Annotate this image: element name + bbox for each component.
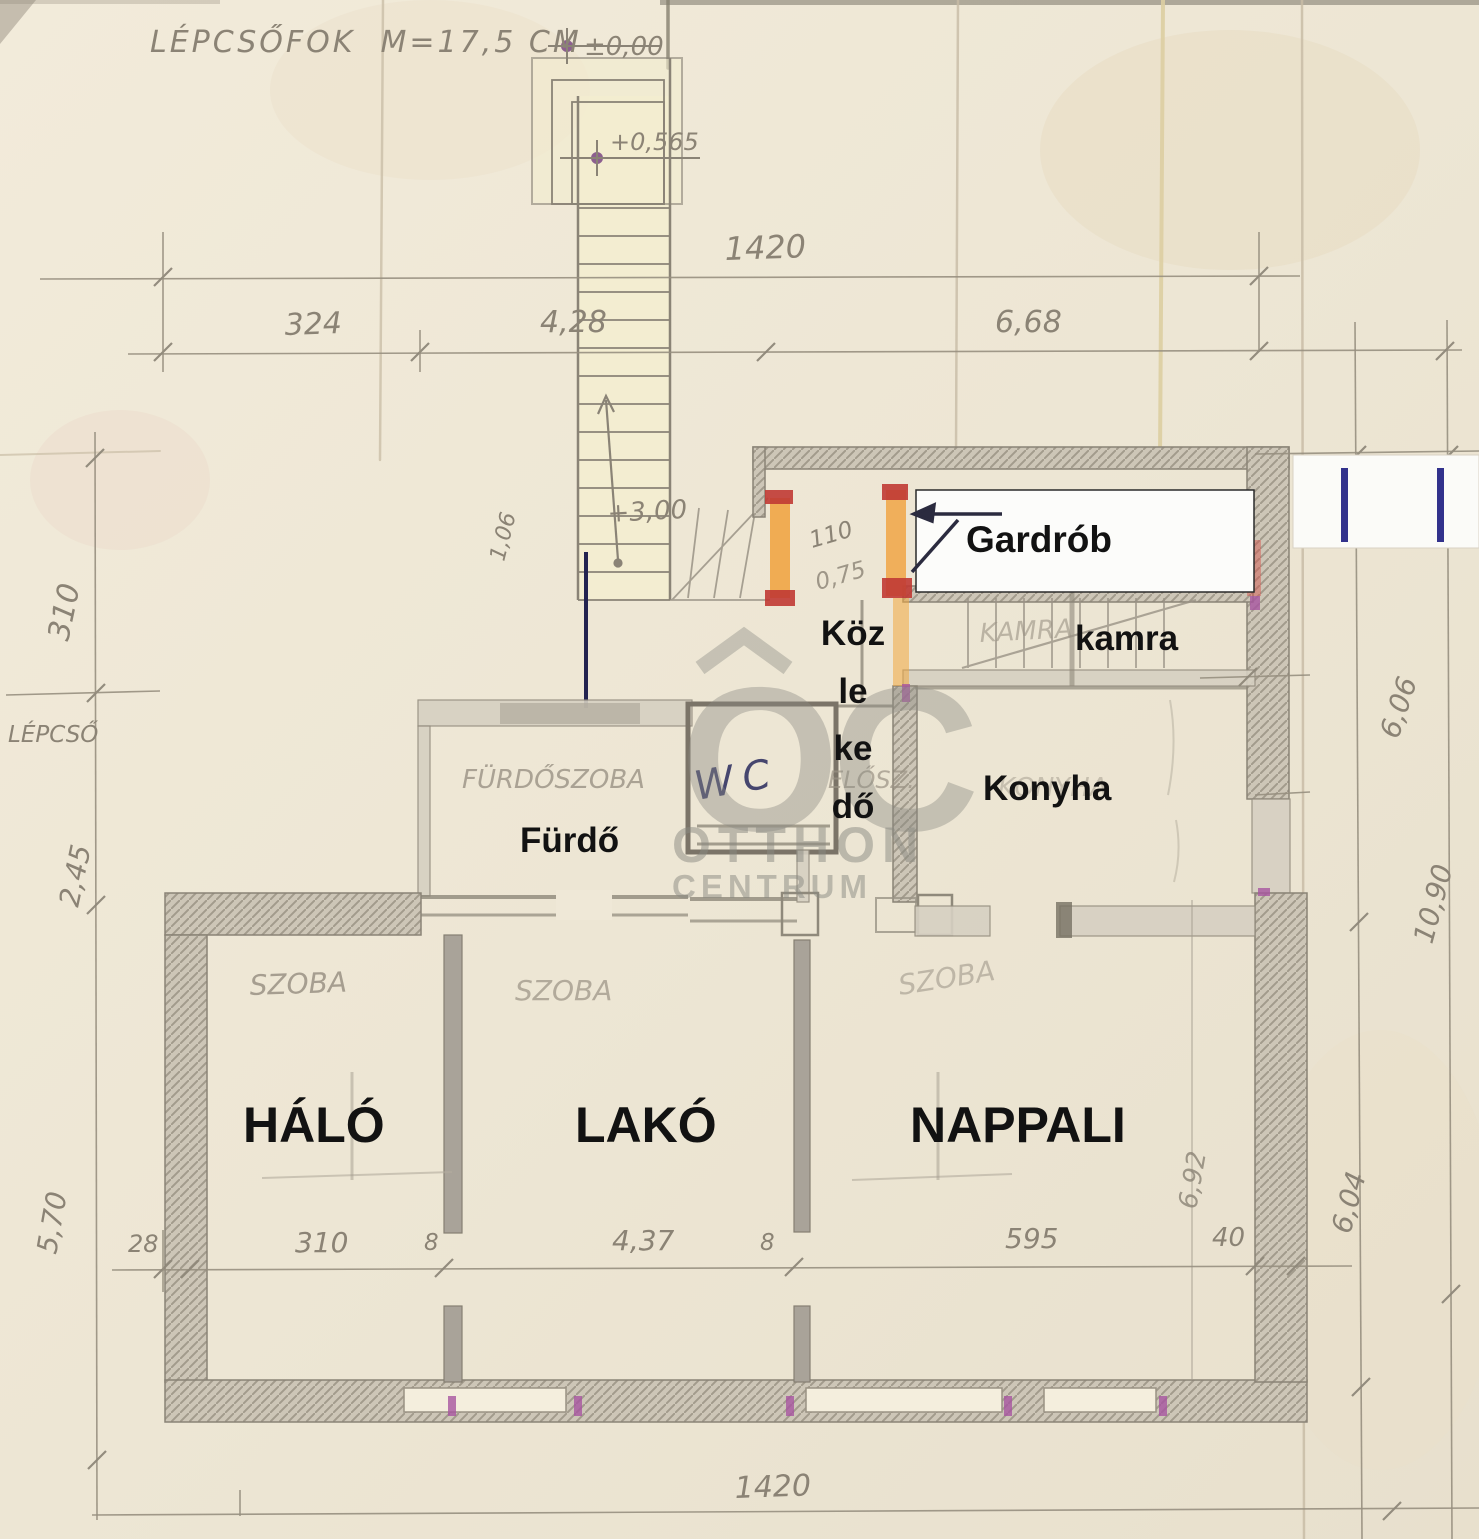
konyha-label: Konyha bbox=[983, 769, 1112, 808]
gardrob-label: Gardrób bbox=[966, 519, 1112, 560]
dim-40: 40 bbox=[1212, 1223, 1245, 1253]
szoba-label-1: SZOBA bbox=[249, 966, 347, 1002]
dim-595: 595 bbox=[1005, 1222, 1058, 1255]
kozlekedo-line-4: dő bbox=[832, 787, 875, 826]
dim-324: 324 bbox=[284, 306, 342, 343]
dim-428: 4,28 bbox=[540, 305, 607, 340]
floor-plan-drawing: LÉPCSŐFOK M=17,5 CM ±0,00 +0,565 +3,00 1… bbox=[0, 0, 1479, 1539]
dim-668: 6,68 bbox=[995, 305, 1062, 340]
kozlekedo-line-3: ke bbox=[834, 729, 873, 768]
scanned-floor-plan: LÉPCSŐFOK M=17,5 CM ±0,00 +0,565 +3,00 1… bbox=[0, 0, 1479, 1539]
kamra-handwritten-label: KAMRA bbox=[979, 614, 1074, 649]
ink-mark bbox=[1341, 468, 1348, 542]
furdo-label: Fürdő bbox=[520, 821, 619, 860]
window bbox=[1044, 1388, 1156, 1412]
right-edge-patch bbox=[1293, 455, 1479, 548]
kozlekedo-line-1: Köz bbox=[821, 614, 885, 653]
partition-lako-nappali bbox=[794, 940, 810, 1232]
window bbox=[806, 1388, 1002, 1412]
dim-28: 28 bbox=[128, 1230, 159, 1258]
watermark-line2: CENTRUM bbox=[672, 868, 872, 905]
kamra-label: kamra bbox=[1075, 619, 1179, 658]
level-mid-flight: +3,00 bbox=[607, 495, 688, 529]
furdoszoba-label: FÜRDŐSZOBA bbox=[462, 763, 645, 795]
ink-mark bbox=[1437, 468, 1444, 542]
stair-note: LÉPCSŐFOK M=17,5 CM bbox=[150, 23, 582, 60]
window bbox=[404, 1388, 566, 1412]
dim-437: 4,37 bbox=[612, 1224, 675, 1257]
watermark-line1: OTTHON bbox=[672, 817, 925, 873]
dim-310-bottom: 310 bbox=[295, 1226, 348, 1259]
nappali-label: NAPPALI bbox=[910, 1097, 1126, 1153]
level-landing: +0,565 bbox=[610, 128, 699, 156]
watermark: OC OTTHON CENTRUM bbox=[672, 636, 974, 905]
dim-8a: 8 bbox=[424, 1230, 439, 1256]
kozlekedo-line-2: le bbox=[838, 672, 867, 711]
dim-top-total: 1420 bbox=[724, 227, 807, 268]
halo-label: HÁLÓ bbox=[243, 1097, 385, 1153]
lako-label: LAKÓ bbox=[575, 1097, 717, 1153]
partition-halo-lako bbox=[444, 935, 462, 1233]
szoba-label-2: SZOBA bbox=[515, 974, 612, 1007]
dim-bottom-total: 1420 bbox=[734, 1468, 812, 1506]
lepcso-label: LÉPCSŐ bbox=[8, 720, 98, 748]
dim-8b: 8 bbox=[760, 1230, 775, 1256]
